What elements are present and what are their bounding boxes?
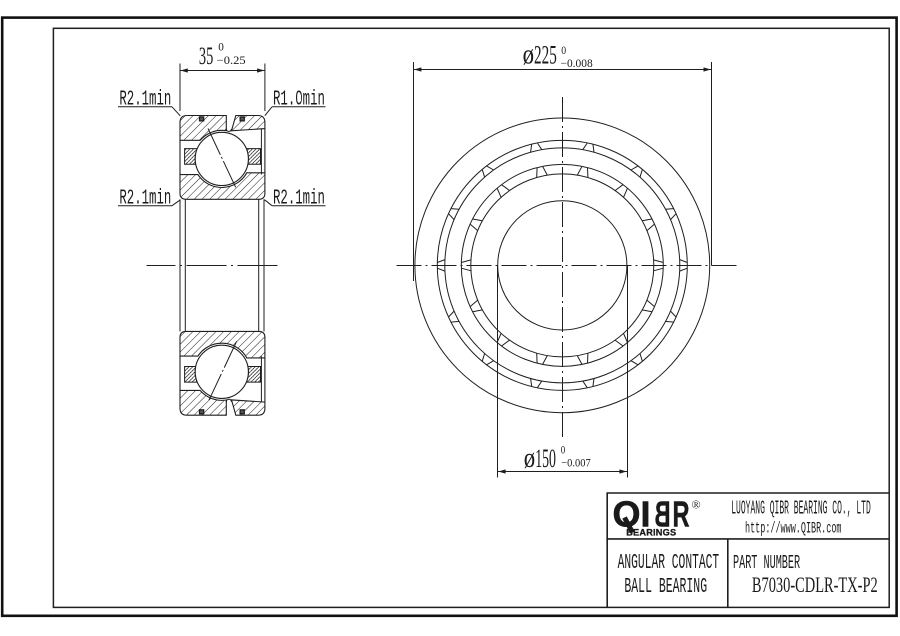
svg-text:150: 150 — [535, 444, 556, 473]
svg-text:0: 0 — [561, 444, 566, 456]
svg-text:0: 0 — [218, 42, 224, 54]
svg-text:ø: ø — [523, 39, 534, 70]
svg-text:BALL BEARING: BALL BEARING — [624, 575, 707, 599]
svg-text:®: ® — [692, 498, 701, 512]
svg-text:35: 35 — [199, 41, 213, 70]
svg-text:−0.007: −0.007 — [561, 458, 591, 470]
svg-text:225: 225 — [534, 40, 557, 69]
svg-text:0: 0 — [561, 45, 566, 57]
svg-text:PART NUMBER: PART NUMBER — [733, 552, 800, 574]
svg-text:−0.25: −0.25 — [217, 55, 246, 67]
svg-text:ø: ø — [524, 443, 535, 474]
svg-text:BEARINGS: BEARINGS — [626, 527, 676, 537]
svg-text:B7030-CDLR-TX-P2: B7030-CDLR-TX-P2 — [752, 572, 878, 597]
svg-text:R2.1min: R2.1min — [119, 88, 171, 112]
svg-text:ANGULAR CONTACT: ANGULAR CONTACT — [618, 551, 720, 575]
svg-text:LUOYANG QIBR BEARING CO., LTD: LUOYANG QIBR BEARING CO., LTD — [731, 497, 871, 519]
svg-text:R2.1min: R2.1min — [273, 187, 325, 211]
svg-text:−0.008: −0.008 — [561, 58, 593, 70]
svg-text:http://www.QIBR.com: http://www.QIBR.com — [745, 519, 842, 537]
svg-text:R2.1min: R2.1min — [119, 187, 171, 211]
